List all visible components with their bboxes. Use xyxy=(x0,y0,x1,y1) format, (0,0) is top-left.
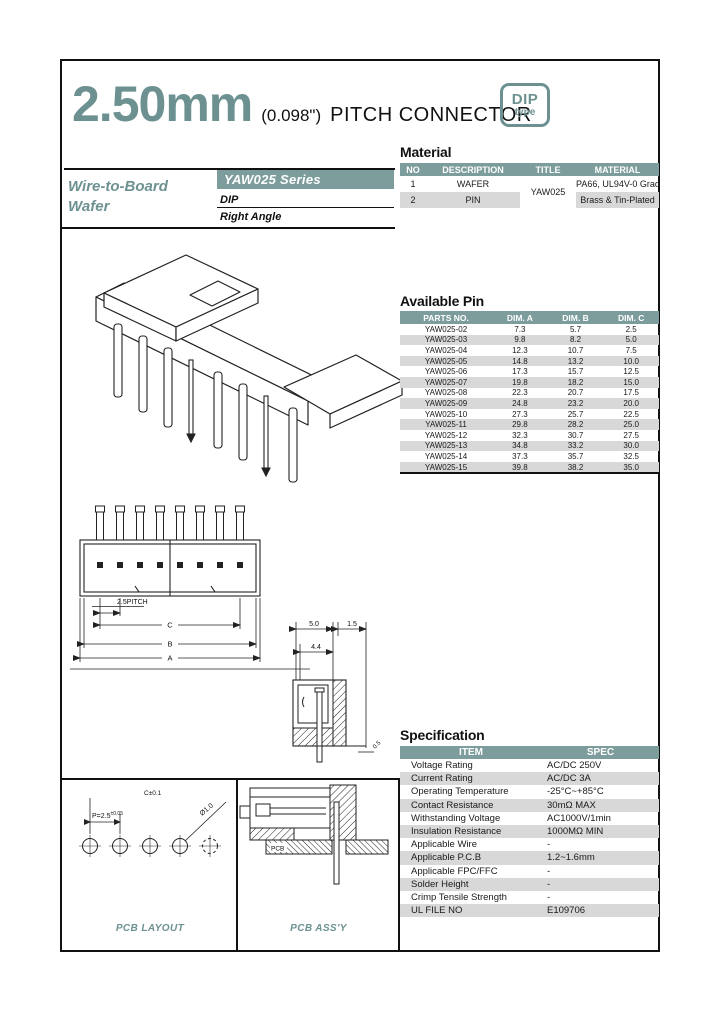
side-view-body xyxy=(293,680,366,762)
pin-cell-parts-no: YAW025-15 xyxy=(400,462,492,474)
dim-b-label: B xyxy=(167,640,172,649)
spec-cell-item: Crimp Tensile Strength xyxy=(400,891,542,904)
spec-header-item: ITEM xyxy=(400,746,542,759)
pin-cell-dim-a: 17.3 xyxy=(492,366,548,377)
pin-cell-dim-b: 8.2 xyxy=(548,335,604,346)
pin-cell-dim-a: 14.8 xyxy=(492,356,548,367)
pin-cell-parts-no: YAW025-07 xyxy=(400,377,492,388)
pin-cell-dim-a: 7.3 xyxy=(492,324,548,335)
dim-c-label: C xyxy=(167,621,173,630)
pin-cell-dim-a: 39.8 xyxy=(492,462,548,474)
material-header-description: DESCRIPTION xyxy=(426,163,520,176)
pin-cell-parts-no: YAW025-03 xyxy=(400,335,492,346)
pin-table-row: YAW025-07 19.8 18.2 15.0 xyxy=(400,377,659,388)
pin-cell-dim-a: 32.3 xyxy=(492,430,548,441)
isometric-view-drawing xyxy=(68,237,390,487)
pin-cell-dim-c: 15.0 xyxy=(603,377,659,388)
dip-type-badge: DIP type xyxy=(500,83,550,127)
spec-cell-value: E109706 xyxy=(542,904,659,917)
pin-cell-dim-a: 37.3 xyxy=(492,451,548,462)
pin-table-row: YAW025-08 22.3 20.7 17.5 xyxy=(400,388,659,399)
page-title: 2.50mm (0.098") PITCH CONNECTOR xyxy=(72,75,532,133)
pitch-value: P=2.5 xyxy=(92,813,111,820)
pitch-size-title: 2.50mm xyxy=(72,75,252,133)
pin-cell-dim-c: 17.5 xyxy=(603,388,659,399)
pin-header-parts-no: PARTS NO. xyxy=(400,311,492,324)
pcb-assembly-caption: PCB ASS'Y xyxy=(238,923,399,934)
material-header-title: TITLE xyxy=(520,163,576,176)
pin-table-row: YAW025-15 39.8 38.2 35.0 xyxy=(400,462,659,474)
pin-cell-parts-no: YAW025-06 xyxy=(400,366,492,377)
pin-cell-dim-c: 22.5 xyxy=(603,409,659,420)
material-cell-description: PIN xyxy=(426,192,520,208)
spec-table-row: Solder Height - xyxy=(400,878,659,891)
pcb-assembly-drawing: PCB xyxy=(238,782,399,890)
material-cell-material: Brass & Tin-Plated xyxy=(576,192,659,208)
spec-cell-item: Applicable P.C.B xyxy=(400,851,542,864)
pin-table-row: YAW025-11 29.8 28.2 25.0 xyxy=(400,419,659,430)
spec-cell-value: - xyxy=(542,838,659,851)
spec-cell-item: Voltage Rating xyxy=(400,759,542,772)
dip-badge-label: DIP xyxy=(512,92,539,107)
spec-cell-item: Withstanding Voltage xyxy=(400,812,542,825)
side-dim-50-label: 5.0 xyxy=(309,621,319,628)
material-table-header: NO DESCRIPTION TITLE MATERIAL xyxy=(400,163,659,176)
pin-cell-parts-no: YAW025-10 xyxy=(400,409,492,420)
pin-cell-dim-a: 12.3 xyxy=(492,345,548,356)
spec-cell-item: UL FILE NO xyxy=(400,904,542,917)
pin-cell-parts-no: YAW025-09 xyxy=(400,398,492,409)
page-border: 2.50mm (0.098") PITCH CONNECTOR DIP type… xyxy=(60,59,660,952)
pin-table-row: YAW025-10 27.3 25.7 22.5 xyxy=(400,409,659,420)
series-name-banner: YAW025 Series xyxy=(217,170,394,189)
side-view-drawing: 5.0 1.5 4.4 0.5 xyxy=(288,600,400,785)
pin-cell-parts-no: YAW025-05 xyxy=(400,356,492,367)
pin-table-row: YAW025-03 9.8 8.2 5.0 xyxy=(400,335,659,346)
material-header-material: MATERIAL xyxy=(576,163,659,176)
pitch-tol-value: ±0.05 xyxy=(111,811,124,817)
spec-table-header: ITEM SPEC xyxy=(400,746,659,759)
mount-type-label: DIP xyxy=(220,194,238,206)
pin-cell-dim-c: 12.5 xyxy=(603,366,659,377)
front-view-drawing: 2.5PITCH C B A xyxy=(70,492,310,677)
pin-cell-parts-no: YAW025-14 xyxy=(400,451,492,462)
spec-table-row: Crimp Tensile Strength - xyxy=(400,891,659,904)
pin-cell-parts-no: YAW025-11 xyxy=(400,419,492,430)
pin-cell-parts-no: YAW025-13 xyxy=(400,441,492,452)
spec-cell-item: Insulation Resistance xyxy=(400,825,542,838)
pin-table-row: YAW025-12 32.3 30.7 27.5 xyxy=(400,430,659,441)
spec-table-row: Operating Temperature -25°C~+85°C xyxy=(400,785,659,798)
pin-cell-dim-a: 27.3 xyxy=(492,409,548,420)
spec-cell-value: AC1000V/1min xyxy=(542,812,659,825)
material-header-no: NO xyxy=(400,163,426,176)
material-row: 1 WAFER YAW025 PA66, UL94V-0 Grade xyxy=(400,176,659,192)
pin-cell-dim-c: 10.0 xyxy=(603,356,659,367)
pin-cell-dim-a: 22.3 xyxy=(492,388,548,399)
spec-table-row: UL FILE NO E109706 xyxy=(400,904,659,917)
pcb-layout-labels: C±0.1 P=2.5±0.05 Ø1.0 xyxy=(92,790,215,820)
available-pin-table: PARTS NO. DIM. A DIM. B DIM. C YAW025-02… xyxy=(400,311,659,474)
side-dim-15-label: 1.5 xyxy=(347,621,357,628)
pitch-tolerance-label: P=2.5±0.05 xyxy=(92,811,123,820)
pin-table-row: YAW025-02 7.3 5.7 2.5 xyxy=(400,324,659,335)
front-view-body xyxy=(80,540,260,596)
spec-table-row: Applicable P.C.B 1.2~1.6mm xyxy=(400,851,659,864)
pcb-layout-holes xyxy=(79,835,221,857)
pin-cell-dim-b: 13.2 xyxy=(548,356,604,367)
pin-cell-dim-b: 10.7 xyxy=(548,345,604,356)
spec-cell-value: AC/DC 3A xyxy=(542,772,659,785)
pin-header-dim-c: DIM. C xyxy=(603,311,659,324)
pin-cell-dim-a: 29.8 xyxy=(492,419,548,430)
datasheet-page: 2.50mm (0.098") PITCH CONNECTOR DIP type… xyxy=(0,0,720,1012)
product-family-line2: Wafer xyxy=(68,197,168,217)
material-cell-no: 1 xyxy=(400,176,426,192)
orientation-label: Right Angle xyxy=(220,211,281,223)
spec-cell-value: - xyxy=(542,865,659,878)
pin-cell-dim-b: 35.7 xyxy=(548,451,604,462)
pin-header-dim-b: DIM. B xyxy=(548,311,604,324)
side-dim-44-label: 4.4 xyxy=(311,644,321,651)
spec-table-row: Applicable FPC/FFC - xyxy=(400,865,659,878)
pin-cell-dim-b: 5.7 xyxy=(548,324,604,335)
spec-cell-value: -25°C~+85°C xyxy=(542,785,659,798)
pin-cell-dim-b: 33.2 xyxy=(548,441,604,452)
material-cell-no: 2 xyxy=(400,192,426,208)
pin-cell-parts-no: YAW025-04 xyxy=(400,345,492,356)
pin-cell-parts-no: YAW025-02 xyxy=(400,324,492,335)
pcb-layout-drawing: C±0.1 P=2.5±0.05 Ø1.0 xyxy=(62,782,238,890)
spec-table-row: Voltage Rating AC/DC 250V xyxy=(400,759,659,772)
pin-cell-dim-b: 20.7 xyxy=(548,388,604,399)
pcb-board-label: PCB xyxy=(271,846,284,853)
pin-cell-dim-b: 30.7 xyxy=(548,430,604,441)
spec-cell-item: Current Rating xyxy=(400,772,542,785)
pin-table-row: YAW025-09 24.8 23.2 20.0 xyxy=(400,398,659,409)
pin-cell-dim-c: 20.0 xyxy=(603,398,659,409)
pin-cell-dim-c: 27.5 xyxy=(603,430,659,441)
spec-cell-value: AC/DC 250V xyxy=(542,759,659,772)
series-divider-mid xyxy=(217,207,394,208)
product-family-label: Wire-to-Board Wafer xyxy=(68,177,168,217)
spec-cell-item: Contact Resistance xyxy=(400,799,542,812)
pin-cell-dim-a: 9.8 xyxy=(492,335,548,346)
spec-table-row: Withstanding Voltage AC1000V/1min xyxy=(400,812,659,825)
spec-cell-value: - xyxy=(542,891,659,904)
pcb-layout-caption: PCB LAYOUT xyxy=(62,923,238,934)
pin-table-row: YAW025-05 14.8 13.2 10.0 xyxy=(400,356,659,367)
spec-cell-value: 1000MΩ MIN xyxy=(542,825,659,838)
pin-cell-parts-no: YAW025-12 xyxy=(400,430,492,441)
front-view-dimensions xyxy=(70,598,310,669)
spec-cell-value: - xyxy=(542,878,659,891)
material-cell-series: YAW025 xyxy=(520,176,576,208)
pin-cell-dim-b: 18.2 xyxy=(548,377,604,388)
spec-header-spec: SPEC xyxy=(542,746,659,759)
drawing-box-top-border xyxy=(62,778,399,780)
pin-table-row: YAW025-04 12.3 10.7 7.5 xyxy=(400,345,659,356)
pin-cell-dim-c: 7.5 xyxy=(603,345,659,356)
pin-cell-dim-a: 24.8 xyxy=(492,398,548,409)
available-pin-section-title: Available Pin xyxy=(400,293,484,309)
spec-table-row: Applicable Wire - xyxy=(400,838,659,851)
product-family-line1: Wire-to-Board xyxy=(68,177,168,197)
spec-cell-item: Solder Height xyxy=(400,878,542,891)
pin-cell-dim-a: 19.8 xyxy=(492,377,548,388)
pin-cell-dim-c: 32.5 xyxy=(603,451,659,462)
pin-cell-dim-b: 25.7 xyxy=(548,409,604,420)
pin-cell-dim-c: 30.0 xyxy=(603,441,659,452)
specification-section-title: Specification xyxy=(400,727,485,743)
pin-table-header: PARTS NO. DIM. A DIM. B DIM. C xyxy=(400,311,659,324)
pin-cell-dim-b: 28.2 xyxy=(548,419,604,430)
pin-cell-dim-a: 34.8 xyxy=(492,441,548,452)
pin-cell-dim-b: 23.2 xyxy=(548,398,604,409)
series-divider-bottom xyxy=(62,227,395,229)
spec-cell-item: Applicable FPC/FFC xyxy=(400,865,542,878)
front-view-dim-labels: 2.5PITCH C B A xyxy=(117,599,173,663)
dim-a-label: A xyxy=(167,654,172,663)
spec-table-row: Contact Resistance 30mΩ MAX xyxy=(400,799,659,812)
pitch-size-inches: (0.098") xyxy=(261,106,321,126)
pin-cell-dim-b: 38.2 xyxy=(548,462,604,474)
material-cell-description: WAFER xyxy=(426,176,520,192)
spec-cell-item: Operating Temperature xyxy=(400,785,542,798)
spec-table-row: Current Rating AC/DC 3A xyxy=(400,772,659,785)
row-tolerance-label: C±0.1 xyxy=(144,790,162,797)
pin-cell-dim-c: 5.0 xyxy=(603,335,659,346)
specification-table: ITEM SPEC Voltage Rating AC/DC 250V Curr… xyxy=(400,746,659,917)
pcb-assembly-section xyxy=(240,785,388,884)
dip-badge-sublabel: type xyxy=(515,108,536,118)
material-table: NO DESCRIPTION TITLE MATERIAL 1 WAFER YA… xyxy=(400,163,659,208)
spec-table-row: Insulation Resistance 1000MΩ MIN xyxy=(400,825,659,838)
pin-table-row: YAW025-13 34.8 33.2 30.0 xyxy=(400,441,659,452)
material-section-title: Material xyxy=(400,144,451,160)
pitch-dim-label: 2.5PITCH xyxy=(117,599,148,606)
pin-cell-dim-c: 25.0 xyxy=(603,419,659,430)
pin-cell-dim-b: 15.7 xyxy=(548,366,604,377)
pin-table-row: YAW025-14 37.3 35.7 32.5 xyxy=(400,451,659,462)
material-cell-material: PA66, UL94V-0 Grade xyxy=(576,176,659,192)
pin-cell-dim-c: 35.0 xyxy=(603,462,659,474)
pin-table-row: YAW025-06 17.3 15.7 12.5 xyxy=(400,366,659,377)
spec-cell-value: 1.2~1.6mm xyxy=(542,851,659,864)
spec-cell-value: 30mΩ MAX xyxy=(542,799,659,812)
spec-cell-item: Applicable Wire xyxy=(400,838,542,851)
pin-cell-parts-no: YAW025-08 xyxy=(400,388,492,399)
side-dim-standoff-label: 0.5 xyxy=(372,740,383,751)
pin-header-dim-a: DIM. A xyxy=(492,311,548,324)
pin-cell-dim-c: 2.5 xyxy=(603,324,659,335)
